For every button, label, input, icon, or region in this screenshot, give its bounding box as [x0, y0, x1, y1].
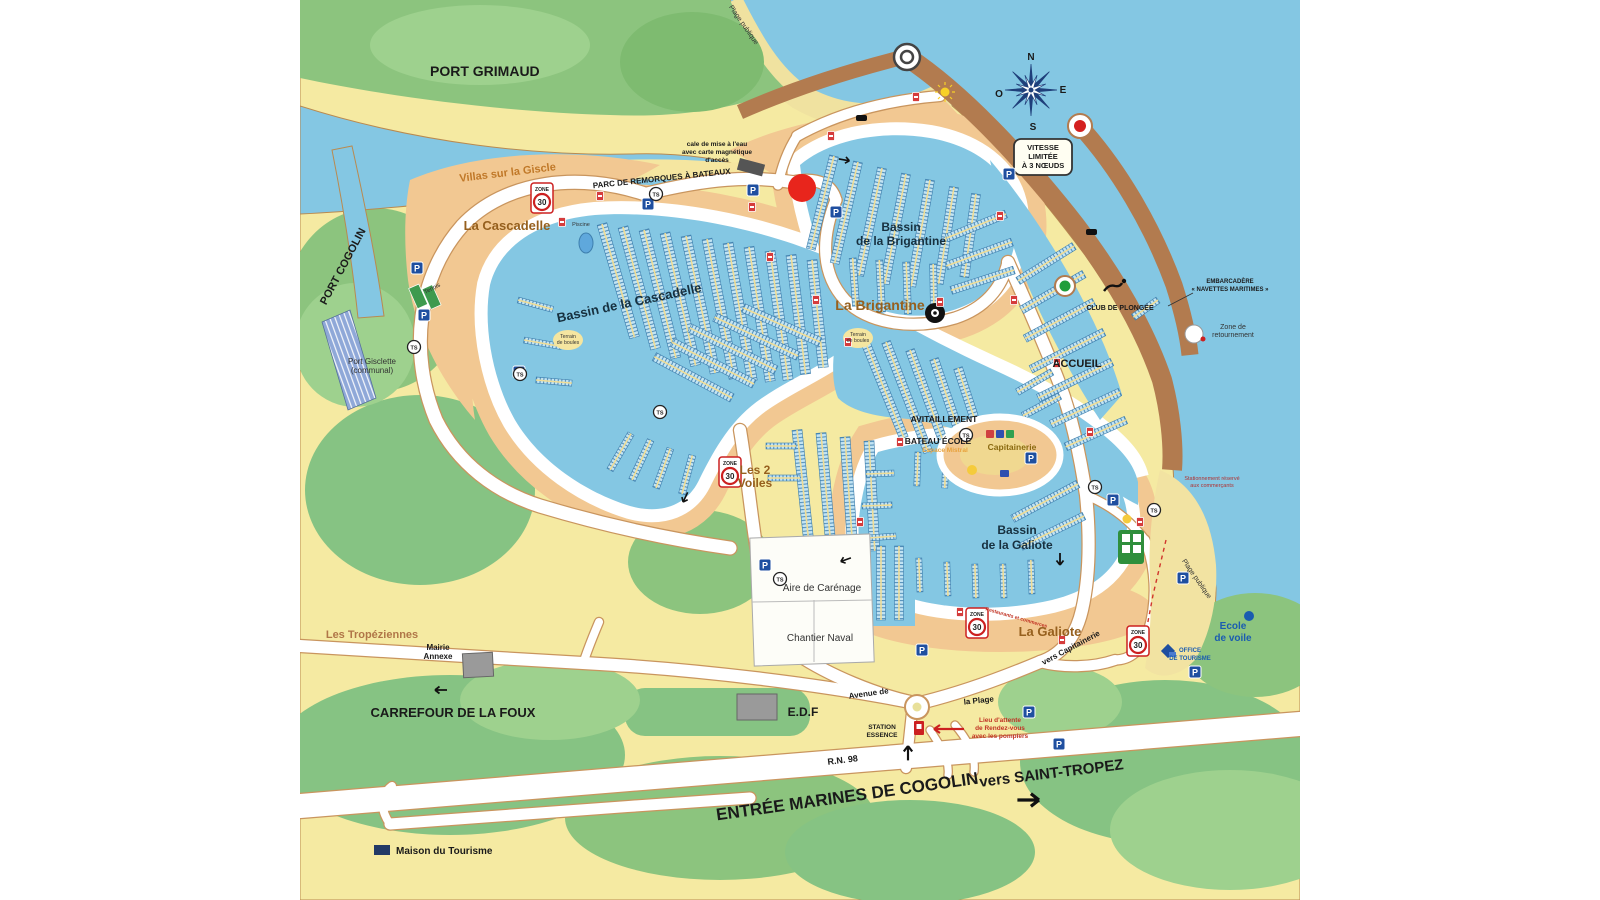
label-embarcadere-2: « NAVETTES MARITIMES »: [1192, 287, 1270, 293]
quay-marker-sign: [1087, 428, 1094, 437]
svg-text:30: 30: [726, 472, 735, 481]
quay-marker-sign: [559, 218, 566, 227]
speed-limit-sign: VITESSE LIMITÉE À 3 NŒUDS: [1014, 139, 1072, 175]
parking-sign: P: [830, 206, 842, 218]
label-accueil: ACCUEIL: [1053, 358, 1102, 370]
parking-sign: P: [747, 184, 759, 196]
label-zone-retournement-2: retournement: [1212, 332, 1254, 339]
svg-text:P: P: [919, 646, 925, 656]
svg-text:P: P: [1056, 740, 1062, 750]
svg-text:30: 30: [1134, 641, 1143, 650]
label-cale-2: avec carte magnétique: [682, 149, 752, 156]
ts-sign: TS: [1089, 481, 1102, 494]
pier: [1000, 564, 1007, 598]
svg-text:ZONE: ZONE: [970, 612, 985, 618]
svg-text:TS: TS: [656, 411, 663, 417]
svg-text:ZONE: ZONE: [723, 461, 738, 467]
compass-n: N: [1027, 52, 1034, 63]
label-terrain-boules-2b: de boules: [847, 338, 870, 344]
label-maison-tourisme: Maison du Tourisme: [396, 846, 493, 857]
harbor-map: N E S O VITESSE LIMITÉE À 3 NŒUDS PPPPPP…: [300, 0, 1300, 900]
label-port-grimaud: PORT GRIMAUD: [430, 63, 540, 79]
label-cale-1: cale de mise à l'eau: [687, 141, 747, 148]
quay-marker-sign: [767, 253, 774, 262]
maison-tourisme-icon: [374, 845, 390, 855]
parking-sign: P: [1025, 452, 1037, 464]
red-beacon: [1068, 114, 1092, 138]
pier: [877, 546, 886, 620]
svg-text:ZONE: ZONE: [535, 187, 550, 193]
label-avitaillement: AVITAILLEMENT: [911, 414, 979, 424]
label-port-gisclette-2: (communal): [351, 366, 394, 375]
white-beacon: [894, 44, 920, 70]
sun-icon: [935, 82, 955, 102]
svg-text:P: P: [421, 311, 427, 321]
label-piscine: Piscine: [572, 222, 590, 228]
ecole-voile-dot: [1244, 611, 1254, 621]
label-embarcadere-1: EMBARCADÈRE: [1206, 277, 1253, 285]
quay-marker-sign: [749, 203, 756, 212]
label-bassin-brigantine-1: Bassin: [881, 220, 920, 234]
ts-sign: TS: [1148, 504, 1161, 517]
speed-limit-line3: À 3 NŒUDS: [1022, 161, 1065, 170]
pier: [1028, 560, 1035, 594]
zone30-sign: ZONE30: [966, 608, 988, 638]
roundabout: [905, 695, 929, 719]
shipyard: [750, 534, 874, 666]
parking-sign: P: [1107, 494, 1119, 506]
ts-sign: TS: [650, 188, 663, 201]
label-bassin-galiote-1: Bassin: [997, 523, 1036, 537]
svg-text:P: P: [750, 186, 756, 196]
pier: [895, 546, 904, 620]
svg-text:TS: TS: [652, 193, 659, 199]
label-la-brigantine: La Brigantine: [835, 297, 925, 313]
parking-sign: P: [418, 309, 430, 321]
quay-marker-sign: [597, 192, 604, 201]
pier: [914, 452, 921, 486]
playground-icon: [1123, 515, 1132, 524]
pier: [768, 475, 800, 481]
label-station-essence-1: STATION: [868, 724, 896, 731]
label-lieu-attente-2: de Rendez-vous: [975, 725, 1025, 732]
compass-s: S: [1030, 122, 1037, 133]
svg-text:P: P: [1180, 574, 1186, 584]
label-chantier-naval: Chantier Naval: [787, 633, 853, 644]
svg-text:P: P: [1006, 170, 1012, 180]
svg-text:TS: TS: [410, 346, 417, 352]
zone30-sign: ZONE30: [1127, 626, 1149, 656]
label-mairie-annexe-2: Annexe: [424, 652, 453, 661]
parking-sign: P: [1177, 572, 1189, 584]
label-bassin-brigantine-2: de la Brigantine: [856, 234, 946, 248]
compass-e: E: [1060, 85, 1067, 96]
parking-sign: P: [1003, 168, 1015, 180]
svg-text:P: P: [1028, 454, 1034, 464]
zone30-sign: ZONE30: [531, 183, 553, 213]
label-capitainerie: Capitainerie: [988, 442, 1037, 452]
quay-marker-sign: [997, 212, 1004, 221]
label-espace-mistral: Espace Mistral: [922, 447, 968, 454]
map-canvas: N E S O VITESSE LIMITÉE À 3 NŒUDS PPPPPP…: [300, 0, 1300, 900]
label-zone-retournement-1: Zone de: [1220, 324, 1246, 331]
label-les-2-voiles-2: Voiles: [738, 476, 773, 490]
svg-text:P: P: [1192, 668, 1198, 678]
svg-text:P: P: [762, 561, 768, 571]
label-la-galiote: La Galiote: [1019, 624, 1082, 639]
label-edf: E.D.F: [788, 705, 819, 719]
label-office-tourisme-2: DE TOURISME: [1169, 656, 1211, 662]
quay-marker-sign: [913, 93, 920, 102]
label-mairie-annexe-1: Mairie: [426, 643, 450, 652]
quay-marker-sign: [957, 608, 964, 617]
parking-sign: P: [1053, 738, 1065, 750]
car-icon: [856, 115, 867, 121]
svg-text:P: P: [1026, 708, 1032, 718]
label-les-tropeziennes: Les Tropéziennes: [326, 629, 418, 641]
label-ecole-voile-2: de voile: [1214, 633, 1252, 644]
label-terrain-boules-1b: de boules: [557, 340, 580, 346]
label-carrefour-foux: CARREFOUR DE LA FOUX: [371, 705, 536, 720]
location-marker[interactable]: [788, 174, 816, 202]
svg-text:P: P: [1110, 496, 1116, 506]
speed-limit-line1: VITESSE: [1027, 143, 1059, 152]
parking-sign: P: [411, 262, 423, 274]
ts-sign: TS: [654, 406, 667, 419]
label-station-essence-2: ESSENCE: [866, 732, 898, 739]
turning-circle-icon: [1185, 325, 1203, 343]
quay-marker-sign: [857, 518, 864, 527]
speed-limit-line2: LIMITÉE: [1028, 152, 1058, 161]
svg-text:P: P: [414, 264, 420, 274]
pier: [866, 470, 894, 477]
pier: [944, 562, 951, 596]
parking-sign: P: [1023, 706, 1035, 718]
parking-sign: P: [1189, 666, 1201, 678]
car-icon-2: [1086, 229, 1097, 235]
label-port-gisclette-1: Port Gisclette: [348, 357, 397, 366]
mairie-building: [462, 652, 493, 678]
svg-text:P: P: [833, 208, 839, 218]
quay-marker-sign: [1137, 518, 1144, 527]
svg-text:ZONE: ZONE: [1131, 630, 1146, 636]
pier: [916, 558, 923, 592]
compass-o: O: [995, 89, 1003, 100]
label-cale-3: d'accès: [705, 157, 729, 164]
label-aire-carenage: Aire de Carénage: [783, 583, 862, 594]
label-la-cascadelle: La Cascadelle: [464, 218, 551, 233]
label-office-tourisme-1: OFFICE: [1179, 648, 1201, 654]
ts-sign: TS: [408, 341, 421, 354]
quay-marker-sign: [897, 438, 904, 447]
pier: [862, 502, 892, 509]
svg-text:P: P: [645, 200, 651, 210]
label-bassin-galiote-2: de la Galiote: [981, 538, 1053, 552]
parking-sign: P: [759, 559, 771, 571]
quay-marker-sign: [1011, 296, 1018, 305]
fuel-pump-icon: [914, 721, 924, 735]
label-bateau-ecole: BATEAU ÉCOLE: [905, 436, 972, 446]
quay-marker-sign: [828, 132, 835, 141]
svg-text:TS: TS: [1150, 509, 1157, 515]
pier: [972, 564, 979, 598]
label-reserve-commercants-1: Stationnement réservé: [1184, 476, 1239, 482]
parking-sign: P: [916, 644, 928, 656]
label-ecole-voile-1: Ecole: [1220, 621, 1247, 632]
svg-text:30: 30: [973, 623, 982, 632]
green-beacon: [1055, 276, 1075, 296]
label-lieu-attente-3: avec les pompiers: [972, 733, 1029, 740]
ts-sign: TS: [514, 368, 527, 381]
pier: [766, 443, 796, 449]
quay-marker-sign: [813, 296, 820, 305]
svg-text:TS: TS: [516, 373, 523, 379]
pool-icon: [579, 233, 593, 253]
label-lieu-attente-1: Lieu d'attente: [979, 717, 1021, 724]
label-club-plongee: CLUB DE PLONGÉE: [1086, 303, 1154, 312]
label-reserve-commercants-2: aux commerçants: [1190, 483, 1234, 489]
quay-marker-sign: [937, 298, 944, 307]
capitainerie-island: [940, 417, 1060, 493]
label-les-2-voiles-1: Les 2: [740, 463, 771, 477]
svg-text:30: 30: [538, 198, 547, 207]
edf-building: [737, 694, 777, 720]
svg-text:TS: TS: [1091, 486, 1098, 492]
